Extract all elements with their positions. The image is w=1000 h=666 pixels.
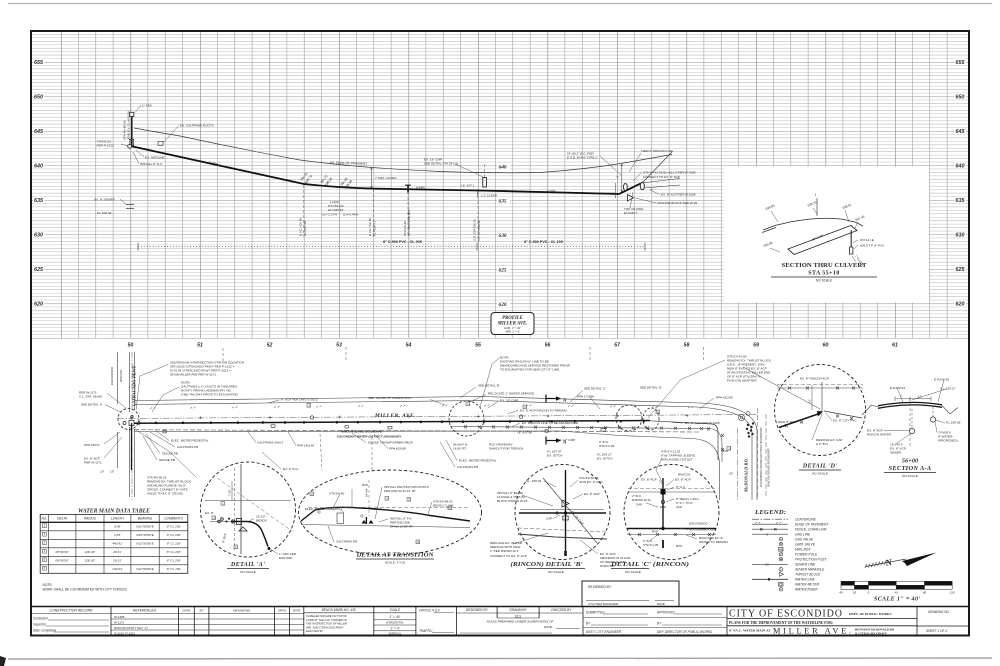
svg-text:EDGE OF PAVEMENT: EDGE OF PAVEMENT — [795, 522, 829, 526]
svg-text:1" ARV: 1" ARV — [142, 104, 153, 108]
svg-text:SEWER LINE: SEWER LINE — [795, 563, 816, 567]
svg-text:640: 640 — [956, 164, 965, 170]
svg-text:CALTRANS PB: CALTRANS PB — [177, 445, 198, 449]
svg-text:RSDSD W-11: RSDSD W-11 — [632, 498, 651, 502]
svg-text:CAP: CAP — [636, 503, 642, 507]
svg-text:NOTE:: NOTE: — [43, 583, 53, 587]
svg-text:PP# 15072: PP# 15072 — [84, 443, 100, 447]
svg-text:STA 57+05: STA 57+05 — [643, 543, 658, 547]
svg-text:15': 15' — [100, 470, 104, 474]
svg-text:GAS VALVE: GAS VALVE — [795, 537, 814, 541]
svg-text:59: 59 — [753, 342, 759, 348]
svg-text:ELEC. METER PEDESTAL: ELEC. METER PEDESTAL — [459, 459, 497, 463]
svg-text:VER. 1" = 4': VER. 1" = 4' — [505, 330, 520, 334]
svg-text:0.15%: 0.15% — [547, 189, 556, 193]
svg-text:EX. 8" ACP PER W-1088: EX. 8" ACP PER W-1088 — [685, 421, 720, 425]
svg-text:EX. DITCH: EX. DITCH — [547, 454, 563, 458]
svg-text:80: 80 — [923, 591, 927, 595]
svg-text:DATE: DATE — [544, 625, 553, 629]
svg-text:637.11 I.E.: 637.11 I.E. — [860, 238, 875, 242]
svg-text:C.L. STA. 56+08: C.L. STA. 56+08 — [79, 395, 102, 399]
svg-text:8" CL 205: 8" CL 205 — [167, 550, 181, 554]
svg-text:636.9 T.P. 8" PVC: 636.9 T.P. 8" PVC — [860, 244, 885, 248]
svg-text:WATER METER: WATER METER — [795, 583, 820, 587]
svg-text:54+60: 54+60 — [365, 488, 369, 497]
svg-text:GAS LINE: GAS LINE — [795, 532, 811, 536]
svg-text:12': 12' — [808, 399, 812, 403]
svg-text:440.91': 440.91' — [112, 542, 122, 546]
svg-text:BEARING: BEARING — [138, 517, 153, 521]
svg-text:R/W: R/W — [362, 483, 368, 487]
svg-text:R/W: R/W — [722, 449, 728, 453]
svg-text:UTILITIES MANAGER: UTILITIES MANAGER — [588, 602, 619, 606]
svg-text:WORK SHALL BE COORDINATED WITH: WORK SHALL BE COORDINATED WITH CITY FORC… — [43, 588, 128, 592]
svg-text:58: 58 — [684, 342, 690, 348]
svg-text:1" = 4': 1" = 4' — [390, 626, 399, 630]
svg-text:0.44%: 0.44% — [416, 186, 425, 190]
svg-text:R/W: R/W — [676, 544, 682, 548]
svg-text:8" CL 205: 8" CL 205 — [167, 533, 181, 537]
svg-text:(RINCON) DETAIL 'B': (RINCON) DETAIL 'B' — [511, 561, 583, 568]
svg-text:Inspector: Inspector — [33, 623, 47, 627]
svg-text:55: 55 — [475, 342, 481, 348]
svg-text:REFERENCES: REFERENCES — [133, 609, 157, 613]
svg-text:W-1171: W-1171 — [114, 620, 125, 624]
svg-text:& 2" B.O.: & 2" B.O. — [816, 442, 829, 446]
svg-text:REVISIONS: REVISIONS — [233, 609, 251, 613]
svg-text:& CITRACADO PKWY: & CITRACADO PKWY — [855, 632, 888, 636]
svg-text:50: 50 — [128, 342, 134, 348]
svg-text:PP# 619180: PP# 619180 — [389, 447, 406, 451]
svg-text:SEWER MANHOLE: SEWER MANHOLE — [795, 568, 825, 572]
svg-text:ASS'T. CITY ENGINEER: ASS'T. CITY ENGINEER — [585, 630, 622, 634]
svg-text:1.83': 1.83' — [114, 533, 121, 537]
svg-text:ELEC. METER PEDESTAL: ELEC. METER PEDESTAL — [305, 507, 343, 511]
svg-text:BENDS: BENDS — [256, 519, 267, 523]
svg-text:51: 51 — [197, 342, 203, 348]
svg-text:08°06'30": 08°06'30" — [55, 550, 69, 554]
svg-text:ESCONDIDO WATER DISTRICT BOUND: ESCONDIDO WATER DISTRICT BOUNDARY — [337, 435, 402, 439]
svg-text:645: 645 — [34, 129, 44, 135]
svg-text:CONSTRUCTION RECORD: CONSTRUCTION RECORD — [50, 609, 93, 613]
svg-text:A: A — [562, 441, 567, 446]
svg-text:DATE: DATE — [293, 609, 301, 613]
svg-text:BLOCK RSDSD W-18: BLOCK RSDSD W-18 — [497, 499, 528, 503]
svg-text:SAWCUT FOR TRENCH: SAWCUT FOR TRENCH — [489, 447, 523, 451]
svg-text:EX. 2" B.G.: EX. 2" B.G. — [283, 467, 299, 471]
svg-text:EL=637.98: EL=637.98 — [303, 221, 307, 236]
svg-text:EX. 8" ACP RINCON TO REMAIN: EX. 8" ACP RINCON TO REMAIN — [520, 409, 567, 413]
svg-text:630: 630 — [34, 233, 43, 239]
svg-text:CENTERLINE: CENTERLINE — [795, 517, 817, 521]
svg-text:ESCONDIDO: ESCONDIDO — [110, 366, 114, 385]
svg-text:NO SCALE: NO SCALE — [902, 474, 918, 478]
svg-text:8" C-900 PVC - CL 205: 8" C-900 PVC - CL 205 — [383, 240, 422, 244]
svg-text:PP# 171866: PP# 171866 — [577, 395, 594, 399]
svg-text:SCALE: 1"=10': SCALE: 1"=10' — [385, 561, 406, 565]
svg-text:G₂=-0.44%: G₂=-0.44% — [343, 213, 358, 217]
svg-text:28.31': 28.31' — [112, 550, 122, 554]
svg-text:640: 640 — [34, 164, 43, 170]
svg-text:28': 28' — [728, 472, 733, 476]
svg-text:F.H. PER ESD 908: F.H. PER ESD 908 — [407, 210, 411, 236]
svg-text:JOIN EX. CL=643.26: JOIN EX. CL=643.26 — [126, 111, 130, 140]
svg-text:53: 53 — [336, 342, 342, 348]
svg-text:S: S — [780, 568, 782, 572]
svg-text:DELTA: DELTA — [57, 517, 67, 521]
svg-text:625: 625 — [956, 267, 966, 273]
svg-text:HOR. 1" = 40': HOR. 1" = 40' — [504, 326, 521, 330]
svg-text:REVIEWED BY:: REVIEWED BY: — [588, 585, 612, 589]
svg-text:VERTICAL: VERTICAL — [388, 632, 402, 636]
svg-text:Date Completed: Date Completed — [33, 629, 56, 633]
svg-text:6" G.V.: 6" G.V. — [676, 485, 686, 489]
svg-text:RINCON: RINCON — [678, 473, 691, 477]
svg-text:JOIN EX. 8" ACP: JOIN EX. 8" ACP — [579, 480, 603, 484]
svg-text:TO EXCAVATING FOR NEW CITY 8": TO EXCAVATING FOR NEW CITY 8" LINE. — [500, 368, 560, 372]
svg-text:CONNECT TO EX. 8" ACP: CONNECT TO EX. 8" ACP — [643, 175, 680, 179]
svg-text:FENCE, CHAIN-LINK: FENCE, CHAIN-LINK — [795, 527, 827, 531]
svg-text:STA 55+10: STA 55+10 — [808, 271, 839, 277]
svg-text:EX. 8" ACP: EX. 8" ACP — [584, 492, 600, 496]
svg-text:POWER POLE: POWER POLE — [795, 553, 818, 557]
svg-text:7.30': 7.30' — [228, 489, 232, 496]
svg-text:WATER TO REMAIN: WATER TO REMAIN — [699, 540, 728, 544]
svg-text:PER W-1171: PER W-1171 — [84, 461, 102, 465]
svg-text:SECTION THRU CULVERT: SECTION THRU CULVERT — [782, 262, 868, 269]
svg-text:1" PER RSDSD W-3: 1" PER RSDSD W-3 — [490, 549, 518, 553]
svg-text:RELOCATE 1" WATER SERVICE: RELOCATE 1" WATER SERVICE — [488, 392, 534, 396]
svg-text:8" CL 205: 8" CL 205 — [167, 559, 181, 563]
svg-text:CONNECT TO EX. 8" ACP: CONNECT TO EX. 8" ACP — [490, 554, 527, 558]
svg-text:C.L.639.27: C.L.639.27 — [940, 387, 955, 391]
svg-text:SEE DETAIL 'B': SEE DETAIL 'B' — [478, 384, 500, 388]
svg-text:640: 640 — [499, 165, 507, 171]
svg-text:DESIGNED BY: DESIGNED BY — [466, 608, 489, 612]
svg-text:8" VCP PER DWG​ S-1013: 8" VCP PER DWG​ S-1013 — [281, 398, 318, 402]
svg-text:645: 645 — [956, 129, 966, 135]
svg-text:635: 635 — [34, 198, 44, 204]
svg-text:PUSH-ON ADAPTER: PUSH-ON ADAPTER — [727, 379, 757, 383]
svg-text:DATE: DATE — [182, 609, 191, 613]
svg-text:DEPT. OF PUBLIC WORKS: DEPT. OF PUBLIC WORKS — [849, 612, 892, 616]
svg-text:630: 630 — [499, 233, 507, 239]
svg-text:7' MIN. COVER: 7' MIN. COVER — [375, 176, 397, 180]
svg-text:W/FLANGED OUTLET: W/FLANGED OUTLET — [661, 458, 693, 462]
svg-text:WATER RISER: WATER RISER — [795, 588, 818, 592]
svg-text:R/W: R/W — [652, 530, 658, 534]
svg-text:WATER LINE: WATER LINE — [795, 578, 816, 582]
svg-text:625: 625 — [34, 267, 44, 273]
svg-text:625: 625 — [499, 268, 507, 274]
svg-text:61: 61 — [892, 342, 898, 348]
svg-text:3': 3' — [616, 175, 620, 178]
svg-text:EL=636.93: EL=636.93 — [328, 208, 343, 212]
svg-text:630: 630 — [956, 233, 965, 239]
svg-text:PER RSD W-16 14' RT.: PER RSD W-16 14' RT. — [384, 489, 416, 493]
svg-text:G: G — [766, 532, 768, 536]
svg-text:SDG&E TRANSFORMER PADS: SDG&E TRANSFORMER PADS — [368, 441, 414, 445]
svg-text:CHECKED BY: CHECKED BY — [551, 608, 573, 612]
svg-text:S-1013, P-1512: S-1013, P-1512 — [114, 631, 135, 635]
svg-text:54+60 16.00' RT.: 54+60 16.00' RT. — [390, 525, 413, 529]
svg-text:Contractor: Contractor — [33, 617, 49, 621]
svg-text:EX. 8" CITY PVC: EX. 8" CITY PVC — [833, 419, 858, 423]
svg-text:RINCON SDWID BOUNDARY: RINCON SDWID BOUNDARY — [767, 447, 771, 487]
svg-text:655: 655 — [34, 60, 44, 66]
svg-text:ANCHOR BLOCK PER W-20: ANCHOR BLOCK PER W-20 — [657, 201, 697, 205]
svg-text:W-1368: W-1368 — [114, 615, 125, 619]
svg-text:I.E. 637.1: I.E. 637.1 — [461, 184, 475, 188]
svg-text:PER P-1512: PER P-1512 — [97, 144, 114, 148]
svg-text:1.1' CLEAR: 1.1' CLEAR — [481, 194, 498, 198]
svg-text:655: 655 — [956, 60, 966, 66]
svg-text:APPROVED: APPROVED — [656, 611, 675, 615]
svg-text:PROFILE: PROFILE — [502, 316, 523, 321]
svg-text:MAIL BOX: MAIL BOX — [795, 548, 811, 552]
svg-text:DEP. DIRECTOR OF PUBLIC WORKS: DEP. DIRECTOR OF PUBLIC WORKS — [657, 630, 713, 634]
svg-text:LEGEND:: LEGEND: — [754, 509, 786, 516]
svg-text:SS: SS — [765, 562, 769, 566]
svg-text:F.L.634.36: F.L.634.36 — [97, 211, 112, 215]
svg-text:EX. GRDLINE: EX. GRDLINE — [145, 156, 165, 160]
svg-text:TRAFFIC: TRAFFIC — [419, 629, 433, 633]
svg-text:N34°30'50"E: N34°30'50"E — [136, 533, 154, 537]
svg-text:54: 54 — [406, 342, 412, 348]
svg-text:N12°50'06"E: N12°50'06"E — [136, 567, 154, 571]
svg-text:VALVE TO EX. 8" CROSS.: VALVE TO EX. 8" CROSS. — [147, 492, 184, 496]
svg-text:5.08': 5.08' — [114, 525, 121, 529]
svg-text:DRAWING NO.: DRAWING NO. — [928, 610, 950, 614]
svg-text:1' CLEAR: 1' CLEAR — [601, 192, 615, 196]
svg-text:NEW 6" RINCON LINE: NEW 6" RINCON LINE — [642, 149, 674, 153]
svg-text:COMMENTS: COMMENTS — [164, 517, 183, 521]
svg-text:F.L.638.08: F.L.638.08 — [946, 421, 961, 425]
svg-text:SEE "DETAIL AT TRANSITION": SEE "DETAIL AT TRANSITION" — [368, 396, 412, 400]
svg-text:THRUST BLOCK: THRUST BLOCK — [795, 573, 821, 577]
svg-text:RINCON P159.7 SHT. 17: RINCON P159.7 SHT. 17 — [114, 626, 148, 630]
svg-text:1" = 40': 1" = 40' — [389, 615, 400, 619]
svg-text:SECTION A-A: SECTION A-A — [888, 465, 931, 472]
svg-text:MILLER, AVE.: MILLER, AVE. — [374, 413, 416, 419]
svg-text:THE INTERSECTION OF MILLER: THE INTERSECTION OF MILLER — [306, 622, 347, 626]
svg-text:16.00' RT.: 16.00' RT. — [453, 447, 467, 451]
svg-text:G₁=-2.07%: G₁=-2.07% — [322, 213, 337, 217]
svg-text:CHISELED SQUARE ON TOP OF: CHISELED SQUARE ON TOP OF — [306, 614, 347, 618]
svg-text:650: 650 — [34, 95, 43, 101]
svg-text:HORIZONTAL: HORIZONTAL — [386, 620, 404, 624]
svg-text:PLANS FOR THE IMPROVEMENT OF T: PLANS FOR THE IMPROVEMENT OF THE WATERLI… — [729, 621, 833, 625]
svg-text:NO.: NO. — [41, 517, 47, 521]
svg-text:INSTALL 8" G.V.: INSTALL 8" G.V. — [140, 162, 163, 166]
svg-text:620: 620 — [956, 302, 965, 308]
svg-text:20: 20 — [853, 591, 857, 595]
svg-text:650: 650 — [956, 95, 965, 101]
svg-text:ACP: ACP — [676, 505, 682, 509]
svg-text:56+00: 56+00 — [902, 458, 919, 465]
svg-text:15': 15' — [110, 470, 114, 474]
svg-text:NO CONNECTION: NO CONNECTION — [689, 528, 715, 532]
svg-text:N12°50'06"E: N12°50'06"E — [136, 542, 154, 546]
svg-text:AVE. AND CITRACADO PKWY.: AVE. AND CITRACADO PKWY. — [305, 625, 344, 629]
svg-text:ESCONDIDO: ESCONDIDO — [689, 522, 708, 526]
svg-text:RINCON SDWID BOUNDARY: RINCON SDWID BOUNDARY — [341, 430, 384, 434]
svg-text:8" C-900 PVC - CL 150: 8" C-900 PVC - CL 150 — [524, 240, 563, 244]
svg-text:200.00': 200.00' — [84, 559, 95, 563]
svg-text:DETAIL 'A': DETAIL 'A' — [230, 561, 265, 568]
svg-text:EL=636.71: EL=636.71 — [372, 221, 376, 236]
svg-text:WATER MAIN DATA TABLE: WATER MAIN DATA TABLE — [78, 509, 150, 515]
svg-text:EX. 8" SEWER: EX. 8" SEWER — [94, 198, 116, 202]
svg-text:ELEV=644.90: ELEV=644.90 — [306, 629, 323, 633]
svg-text:McDONALD RD.: McDONALD RD. — [744, 458, 749, 493]
svg-text:PLANS PREPARED UNDER SUPERVISI: PLANS PREPARED UNDER SUPERVISION OF — [487, 620, 555, 624]
svg-text:A: A — [562, 399, 567, 404]
svg-text:DETAIL 'D': DETAIL 'D' — [802, 463, 838, 470]
svg-text:APP'D: APP'D — [277, 609, 286, 613]
svg-text:8" CL 150: 8" CL 150 — [167, 567, 181, 571]
svg-text:28.31': 28.31' — [112, 559, 122, 563]
svg-text:40: 40 — [895, 591, 899, 595]
svg-text:MB: MB — [779, 549, 783, 552]
svg-text:56+08 MILLER AVE PER W-1171: 56+08 MILLER AVE PER W-1171 — [170, 373, 216, 377]
svg-text:635: 635 — [956, 198, 966, 204]
svg-text:NO SCALE: NO SCALE — [625, 570, 641, 574]
svg-text:(PROPOSED): (PROPOSED) — [938, 439, 958, 443]
svg-text:635: 635 — [499, 199, 507, 205]
svg-text:PROTECTION POST: PROTECTION POST — [795, 558, 827, 562]
svg-text:DETAIL AT TRANSITION: DETAIL AT TRANSITION — [355, 552, 434, 559]
svg-text:PP# 190154: PP# 190154 — [297, 444, 314, 448]
svg-text:STA 54+40: STA 54+40 — [329, 492, 344, 496]
svg-text:NO SCALE: NO SCALE — [816, 279, 832, 283]
svg-text:120: 120 — [950, 591, 955, 595]
svg-text:F.L. 638.09: F.L. 638.09 — [526, 479, 542, 483]
svg-text:T.P. CL=636.90: T.P. CL=636.90 — [477, 220, 481, 241]
svg-text:200.00': 200.00' — [84, 550, 95, 554]
svg-text:NO SCALE: NO SCALE — [548, 570, 564, 574]
svg-text:DETAIL 'C' (RINCON): DETAIL 'C' (RINCON) — [610, 561, 689, 568]
svg-text:60: 60 — [823, 342, 829, 348]
svg-text:56: 56 — [545, 342, 551, 348]
svg-text:ELEC. METER PEDESTAL: ELEC. METER PEDESTAL — [171, 439, 209, 443]
svg-text:LENGTH: LENGTH — [111, 517, 125, 521]
svg-text:CALTRANS PB: CALTRANS PB — [336, 540, 357, 544]
svg-text:12': 12' — [547, 419, 551, 423]
svg-text:40: 40 — [839, 591, 843, 595]
svg-text:NEW 8" PVC: NEW 8" PVC — [778, 420, 797, 424]
svg-text:GATE VALVE: GATE VALVE — [795, 543, 816, 547]
svg-text:E.P.638.90: E.P.638.90 — [934, 378, 949, 382]
svg-text:SCALE: SCALE — [390, 608, 401, 612]
svg-text:52: 52 — [267, 342, 273, 348]
svg-text:EX. 18" CMP: EX. 18" CMP — [500, 399, 518, 403]
svg-text:CALTRANS PB: CALTRANS PB — [457, 465, 478, 469]
svg-text:EX. 8" ACP PER W-1068: EX. 8" ACP PER W-1068 — [661, 193, 696, 197]
svg-text:DRAWN BY: DRAWN BY — [510, 608, 528, 612]
svg-text:620: 620 — [34, 302, 43, 308]
svg-text:240.64': 240.64' — [111, 567, 122, 571]
svg-text:CURB AT THE N.W. CORNER OF: CURB AT THE N.W. CORNER OF — [306, 618, 347, 622]
svg-text:SEWER: SEWER — [890, 451, 902, 455]
svg-text:EX. DITCH: EX. DITCH — [597, 457, 613, 461]
svg-text:SEE DETAIL STA 55+10: SEE DETAIL STA 55+10 — [424, 162, 458, 166]
svg-text:CITY OF ESCONDIDO: CITY OF ESCONDIDO — [729, 609, 842, 620]
svg-text:SEE DETAIL 'A': SEE DETAIL 'A' — [81, 403, 103, 407]
svg-text:PP# 411030: PP# 411030 — [716, 396, 733, 400]
svg-text:EX. 8" ACP: EX. 8" ACP — [641, 478, 657, 482]
svg-text:STA 57+09: STA 57+09 — [599, 444, 614, 448]
svg-text:RINCON WATER: RINCON WATER — [867, 433, 892, 437]
svg-text:EX. CALTRANS DUCTS: EX. CALTRANS DUCTS — [180, 124, 214, 128]
svg-text:08°06'35": 08°06'35" — [55, 559, 69, 563]
svg-text:SDG&E PB: SDG&E PB — [159, 458, 175, 462]
svg-text:I.E. 637.46: I.E. 637.46 — [517, 431, 532, 435]
svg-text:MILLER AVE.: MILLER AVE. — [497, 322, 528, 327]
svg-text:E.S.D. W-4-E TYPE C: E.S.D. W-4-E TYPE C — [567, 156, 598, 160]
svg-text:8" CL 205: 8" CL 205 — [167, 525, 181, 529]
svg-text:CITRACADO PKWY: CITRACADO PKWY — [132, 364, 137, 406]
svg-text:OFFICE H.O.F.: OFFICE H.O.F. — [419, 609, 441, 613]
svg-text:RINCON: RINCON — [119, 369, 123, 382]
svg-text:DATE: DATE — [657, 602, 666, 606]
svg-text:(760) 746-2947 PRIOR TO EXCAVA: (760) 746-2947 PRIOR TO EXCAVATING — [181, 393, 239, 397]
svg-text:620: 620 — [499, 302, 507, 308]
svg-text:BENCH MARK NO. 430: BENCH MARK NO. 430 — [322, 608, 356, 612]
svg-text:EX. 8" ACP: EX. 8" ACP — [675, 478, 691, 482]
svg-text:SHEET 2 OF 2: SHEET 2 OF 2 — [926, 629, 947, 633]
svg-text:ESCONDIDO WATER DISTRICT BOUND: ESCONDIDO WATER DISTRICT BOUNDARY — [759, 426, 763, 487]
svg-text:8" P.V.C. WATER MAIN AT: 8" P.V.C. WATER MAIN AT — [729, 629, 771, 633]
svg-text:CALTRANS VAULT: CALTRANS VAULT — [257, 441, 284, 445]
svg-text:EX. 8" RINCON ACP: EX. 8" RINCON ACP — [800, 377, 829, 381]
svg-text:SUBMITTED: SUBMITTED — [586, 611, 605, 615]
svg-text:N12°50'06"E: N12°50'06"E — [136, 525, 154, 529]
svg-text:EX. 8": EX. 8" — [205, 511, 214, 515]
svg-text:NO SCALE: NO SCALE — [812, 472, 828, 476]
svg-text:RADIUS: RADIUS — [84, 517, 97, 521]
svg-text:SEE DETAIL 'D': SEE DETAIL 'D' — [640, 386, 662, 390]
svg-text:8" CL 205: 8" CL 205 — [167, 542, 181, 546]
svg-text:ESD-90E: ESD-90E — [279, 556, 292, 560]
svg-text:SCALE 1" = 40': SCALE 1" = 40' — [874, 597, 920, 603]
svg-text:CAP: CAP — [546, 517, 552, 521]
svg-text:NO SCALE: NO SCALE — [240, 570, 256, 574]
svg-text:EL=635.7: EL=635.7 — [624, 211, 638, 215]
svg-text:SEE DETAIL 'C': SEE DETAIL 'C' — [584, 387, 606, 391]
